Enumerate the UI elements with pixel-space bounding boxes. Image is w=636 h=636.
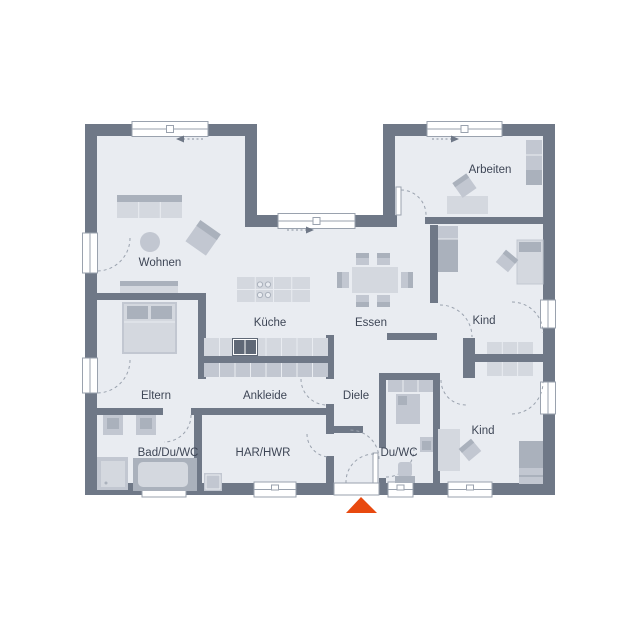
room-label-kueche: Küche: [254, 317, 287, 329]
wall-segment: [326, 456, 334, 483]
window-wohnen-top: [132, 122, 208, 137]
room-label-kind-bottom: Kind: [471, 425, 494, 437]
wall-segment: [379, 478, 386, 483]
shower: [97, 457, 128, 490]
utility-appliance: [204, 473, 222, 491]
shelf-arbeiten: [526, 140, 542, 185]
room-label-eltern: Eltern: [141, 390, 171, 402]
room-label-bad: Bad/Du/WC: [138, 447, 199, 459]
wall-segment: [85, 136, 97, 495]
wall-segment: [245, 136, 257, 215]
window-kind-bottom: [448, 482, 492, 497]
dining-chair: [377, 295, 390, 307]
wall-segment: [191, 408, 330, 415]
sideboard: [120, 281, 178, 293]
washbasin: [103, 415, 123, 435]
wall-segment: [463, 338, 475, 378]
kitchen-counter: [204, 338, 328, 356]
wall-segment: [198, 356, 330, 363]
french-door-wohnen-left: [83, 233, 98, 273]
room-label-duwc: Du/WC: [380, 447, 417, 459]
wall-segment: [430, 225, 438, 303]
room-label-kind-top: Kind: [472, 315, 495, 327]
room-label-har: HAR/HWR: [236, 447, 291, 459]
washbasin: [136, 415, 156, 435]
wall-segment: [97, 408, 163, 415]
dining-table: [352, 267, 398, 293]
dining-chair: [377, 253, 390, 265]
sofa: [117, 195, 182, 218]
pillow: [151, 306, 172, 319]
dining-chair: [401, 272, 413, 288]
wall-segment: [383, 136, 395, 215]
duwc-washbasin: [420, 437, 433, 452]
wall-segment: [387, 333, 437, 340]
french-door-eltern-left: [83, 358, 98, 393]
wardrobe-kind-top: [438, 226, 458, 272]
desk-arbeiten: [447, 196, 488, 214]
french-door-kind-top-right: [541, 300, 556, 328]
room-label-essen: Essen: [355, 317, 387, 329]
pillow: [519, 242, 541, 252]
room-label-diele: Diele: [343, 390, 369, 402]
duwc-closet-row: [388, 380, 433, 392]
dining-chair: [356, 253, 369, 265]
desk-kind-bottom: [438, 429, 460, 471]
wall-segment: [326, 426, 363, 433]
pillow: [127, 306, 148, 319]
room-label-arbeiten: Arbeiten: [469, 164, 512, 176]
bed-kind-top: [517, 240, 543, 284]
dining-chair: [337, 272, 349, 288]
kitchen-island: [237, 277, 310, 302]
wall-segment: [425, 217, 543, 224]
dining-chair: [356, 295, 369, 307]
wall-segment: [379, 373, 440, 380]
room-label-ankleide: Ankleide: [243, 390, 287, 402]
ankleide-closet-row: [204, 363, 328, 377]
floorplan-svg: Wohnen Küche Essen Arbeiten Kind Eltern …: [0, 0, 636, 636]
window-essen-top: [278, 214, 355, 229]
bathtub: [133, 458, 197, 491]
window-duwc-bottom: [388, 482, 413, 497]
coffee-table: [140, 232, 160, 252]
room-label-wohnen: Wohnen: [139, 257, 182, 269]
floorplan-canvas: Wohnen Küche Essen Arbeiten Kind Eltern …: [0, 0, 636, 636]
window-har-bottom: [254, 482, 296, 497]
window-arbeiten-top: [427, 122, 502, 137]
wall-segment: [379, 373, 386, 448]
duwc-shower: [396, 394, 420, 424]
wardrobe-kind-bottom: [519, 441, 543, 484]
wall-segment: [97, 293, 206, 300]
wall-segment: [475, 354, 543, 362]
bed-eltern: [122, 302, 177, 354]
entrance-marker: [346, 497, 377, 513]
toilet: [395, 462, 415, 483]
